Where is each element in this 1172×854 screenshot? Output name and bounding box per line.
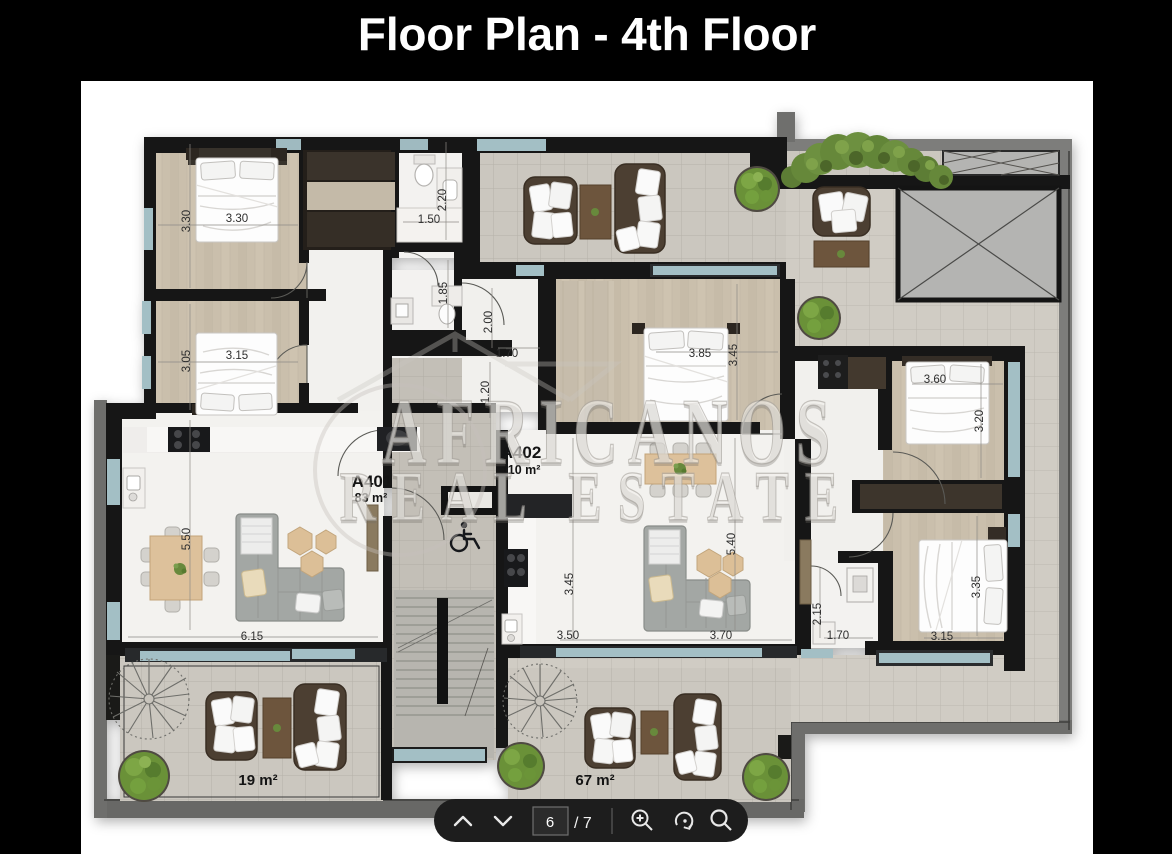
svg-text:5.50: 5.50 <box>181 528 193 550</box>
svg-text:6: 6 <box>546 814 554 831</box>
svg-text:3.30: 3.30 <box>226 213 248 225</box>
svg-text:67 m²: 67 m² <box>575 772 614 789</box>
svg-text:3.70: 3.70 <box>710 630 732 642</box>
svg-text:REAL ESTATE: REAL ESTATE <box>340 458 854 537</box>
svg-text:1.50: 1.50 <box>418 214 440 226</box>
svg-text:19 m²: 19 m² <box>238 772 277 789</box>
svg-text:1.85: 1.85 <box>438 282 450 304</box>
svg-text:3.50: 3.50 <box>557 630 579 642</box>
svg-text:3.15: 3.15 <box>931 631 953 643</box>
svg-text:2.15: 2.15 <box>812 603 824 625</box>
svg-text:3.35: 3.35 <box>971 576 983 598</box>
svg-text:2.20: 2.20 <box>437 189 449 211</box>
svg-text:3.20: 3.20 <box>974 410 986 432</box>
svg-text:3.05: 3.05 <box>181 350 193 372</box>
svg-text:3.30: 3.30 <box>181 210 193 232</box>
svg-text:3.85: 3.85 <box>689 348 711 360</box>
svg-text:3.60: 3.60 <box>924 374 946 386</box>
svg-text:/ 7: / 7 <box>574 815 592 832</box>
svg-text:3.45: 3.45 <box>728 344 740 366</box>
svg-text:6.15: 6.15 <box>241 631 263 643</box>
svg-text:1.70: 1.70 <box>827 630 849 642</box>
svg-text:Floor Plan - 4th Floor: Floor Plan - 4th Floor <box>358 8 816 60</box>
svg-text:2.00: 2.00 <box>483 311 495 333</box>
svg-text:3.15: 3.15 <box>226 350 248 362</box>
svg-text:3.45: 3.45 <box>564 573 576 595</box>
